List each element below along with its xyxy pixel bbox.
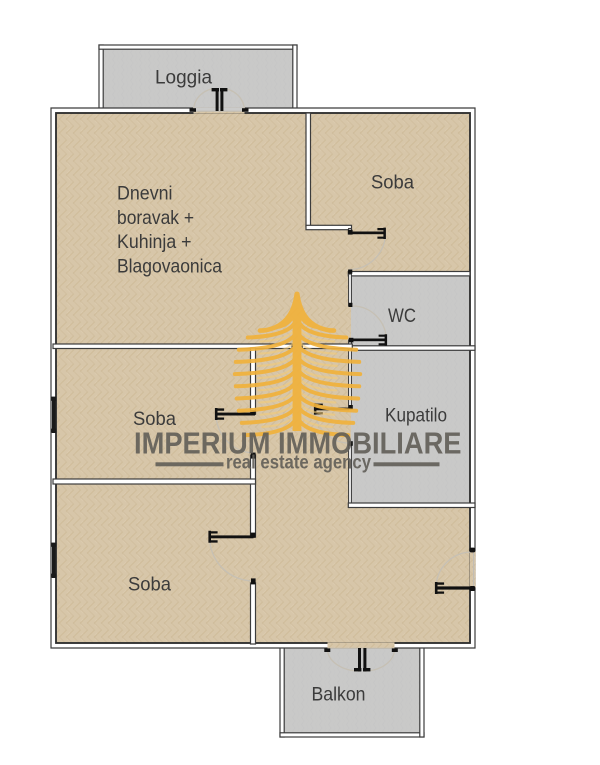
svg-text:Kupatilo: Kupatilo (385, 405, 447, 427)
svg-text:Loggia: Loggia (155, 67, 212, 89)
svg-text:real estate agency: real estate agency (226, 452, 371, 474)
svg-text:Dnevni: Dnevni (117, 183, 173, 205)
svg-text:boravak +: boravak + (117, 207, 194, 229)
svg-text:WC: WC (388, 305, 416, 327)
svg-text:Blagovaonica: Blagovaonica (117, 255, 222, 277)
svg-text:Kuhinja +: Kuhinja + (117, 231, 192, 253)
svg-text:Balkon: Balkon (312, 684, 366, 706)
svg-text:Soba: Soba (128, 574, 171, 596)
svg-text:Soba: Soba (371, 172, 414, 194)
